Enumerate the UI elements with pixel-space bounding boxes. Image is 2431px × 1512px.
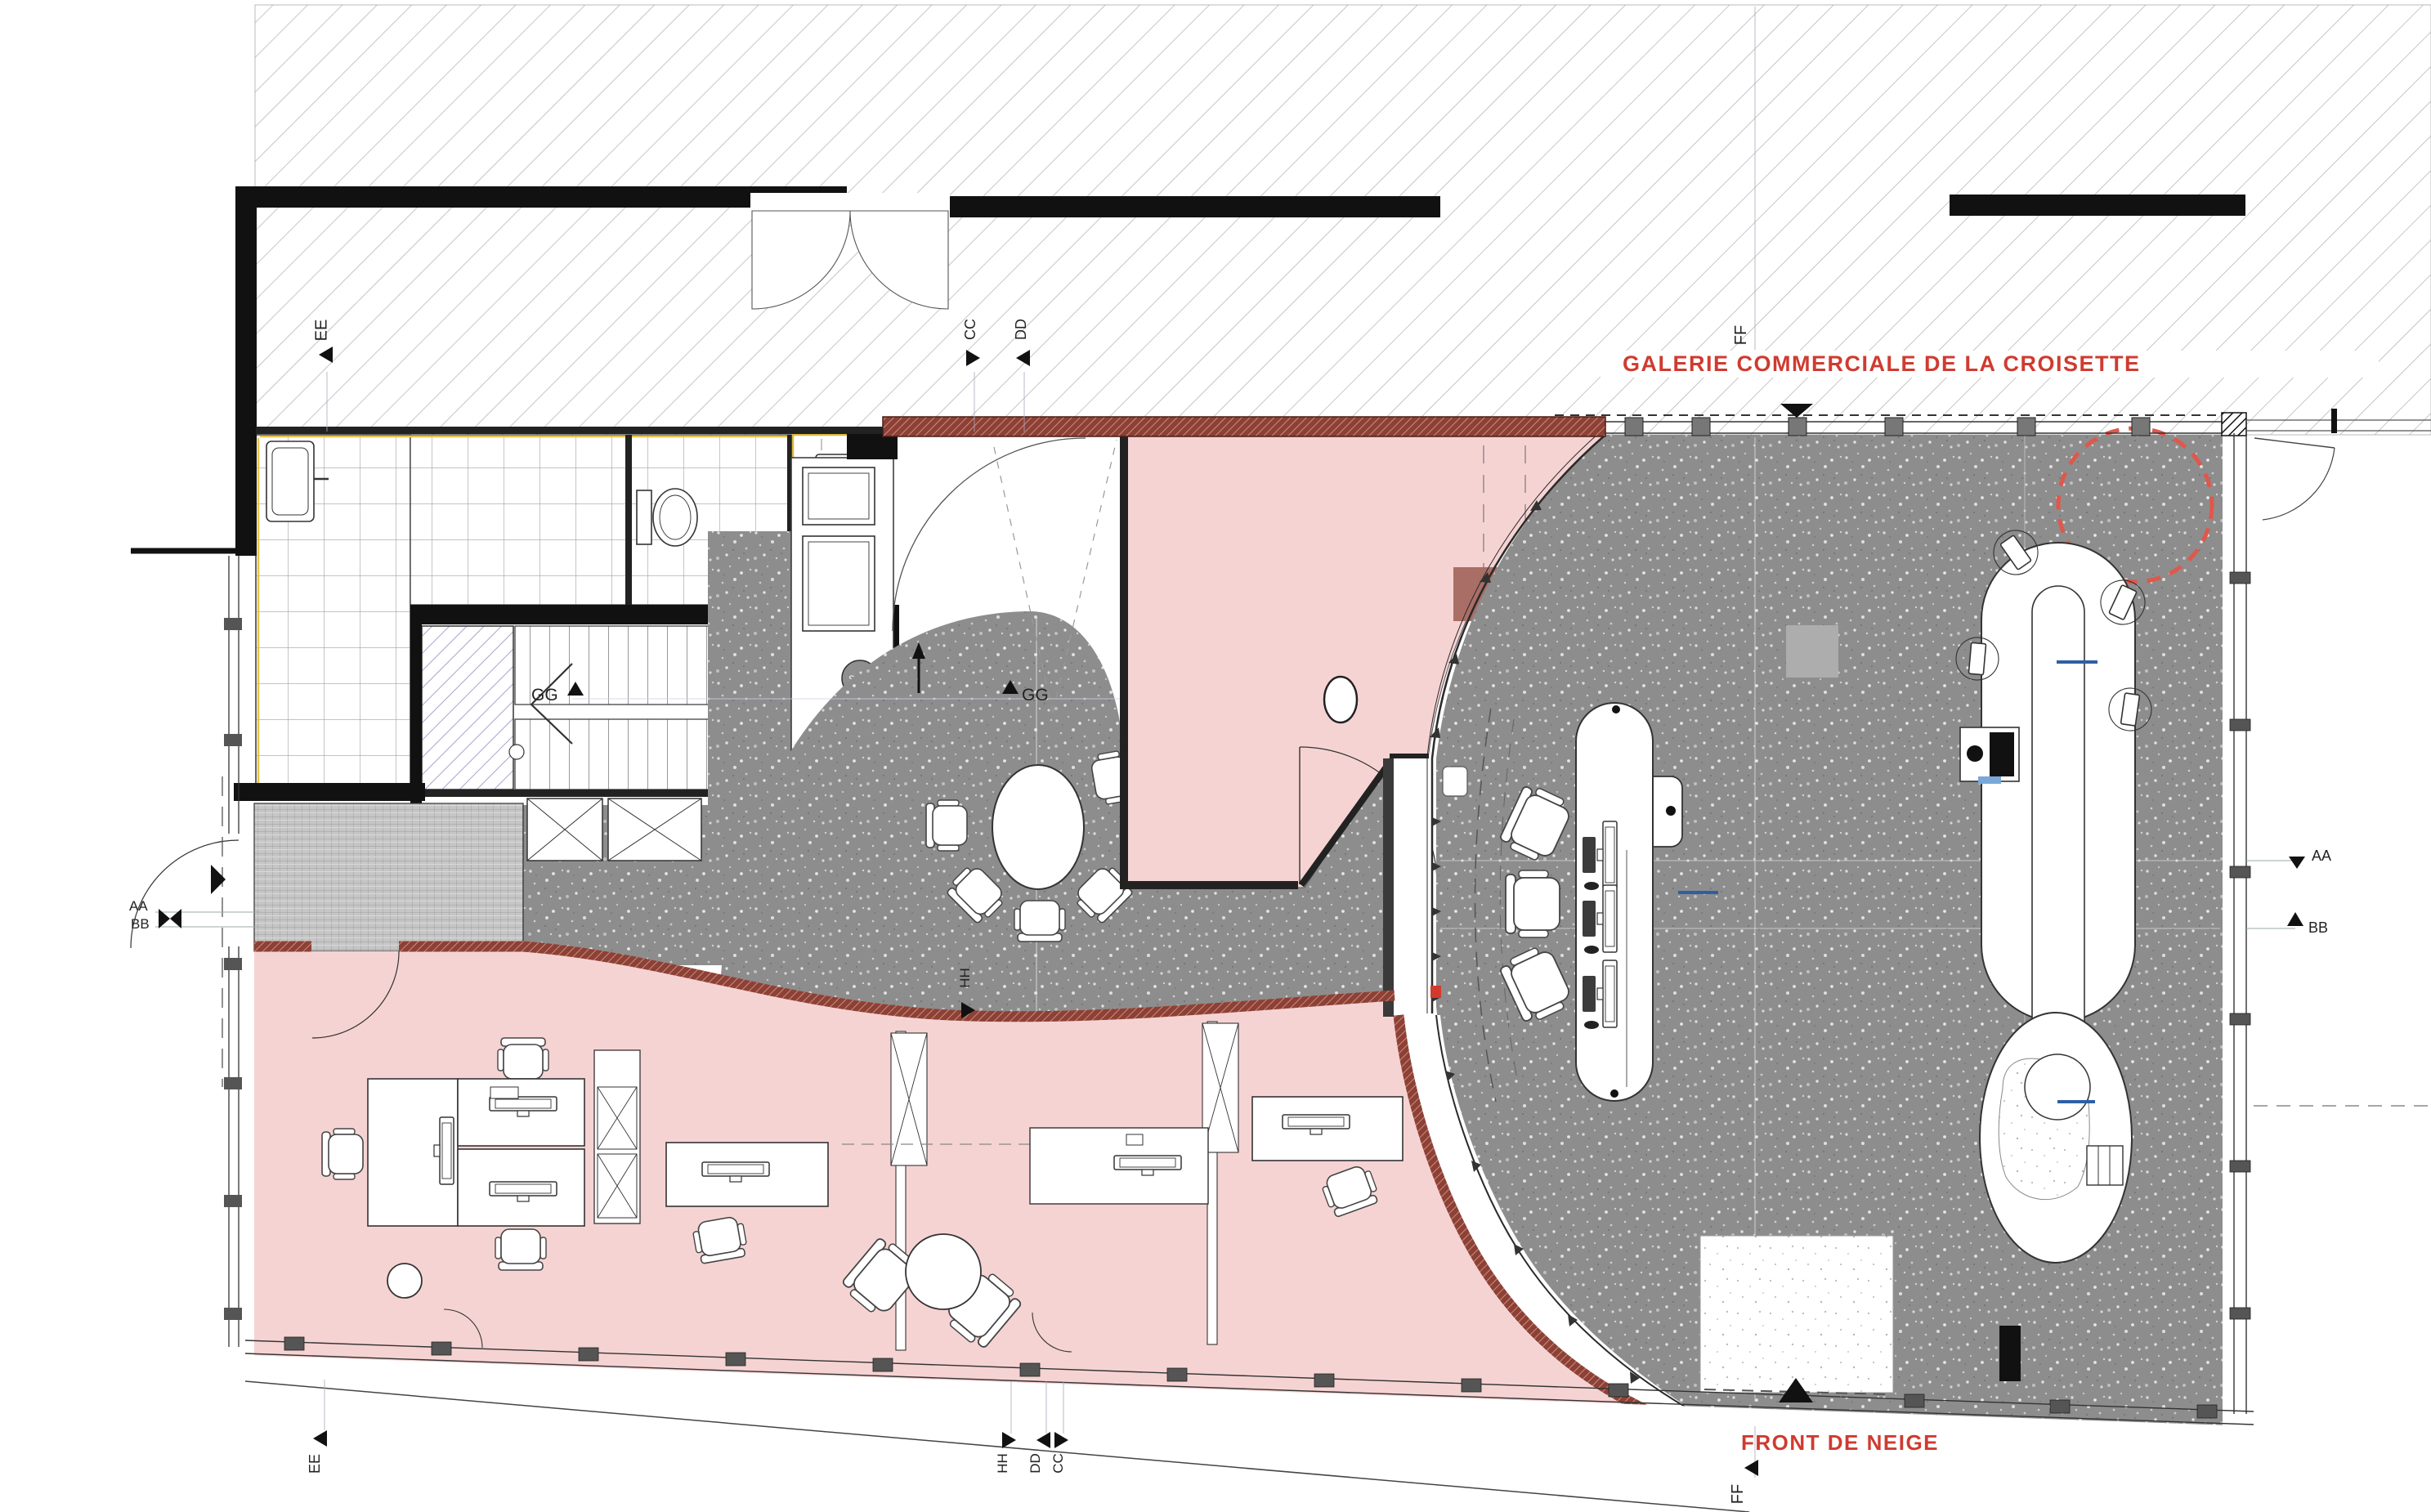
entrance-mat bbox=[1700, 1236, 1893, 1393]
cash-desk-oval bbox=[1980, 1013, 2132, 1263]
section-cc-top: CC bbox=[963, 319, 978, 340]
section-ee-marker-bottom bbox=[313, 1430, 327, 1447]
glazed-facade-right bbox=[2230, 433, 2250, 1414]
front-de-neige-title: FRONT DE NEIGE bbox=[1741, 1432, 1929, 1453]
door-direction-marker bbox=[211, 865, 226, 894]
door-swing bbox=[2263, 448, 2335, 520]
storage-closets bbox=[527, 798, 701, 861]
plan-drawing: Souf. Asp. bbox=[0, 0, 2431, 1512]
office-partition bbox=[594, 1050, 640, 1223]
section-cc-bottom: CC bbox=[1051, 1453, 1065, 1474]
section-bb-marker-right bbox=[2287, 912, 2303, 926]
section-ff-bottom: FF bbox=[1730, 1484, 1746, 1504]
section-cc-marker-top bbox=[966, 350, 980, 366]
section-bb-right: BB bbox=[2308, 920, 2328, 935]
corner-column bbox=[2222, 413, 2246, 436]
floor-opening bbox=[1786, 625, 1838, 678]
section-hh-mid: HH bbox=[958, 968, 972, 988]
section-ff-top: FF bbox=[1733, 325, 1749, 345]
keyboard bbox=[1583, 837, 1596, 1012]
section-hh-marker-bottom bbox=[1002, 1432, 1016, 1448]
section-ee-bottom: EE bbox=[307, 1454, 322, 1474]
section-hh-marker-mid bbox=[961, 1002, 975, 1018]
column bbox=[1324, 677, 1357, 722]
section-gg-marker-left bbox=[567, 682, 584, 696]
floor-plan: Souf. Asp. bbox=[0, 0, 2431, 1512]
side-table bbox=[387, 1264, 422, 1298]
section-aa-left: AA bbox=[129, 899, 148, 913]
section-dd-bottom: DD bbox=[1028, 1453, 1042, 1474]
customer-chair bbox=[1506, 870, 1560, 937]
stool bbox=[2025, 1054, 2090, 1120]
galerie-entrance-arrow bbox=[1780, 404, 1813, 418]
section-dd-marker-top bbox=[1016, 350, 1030, 366]
section-gg-left: GG bbox=[531, 687, 558, 704]
section-dd-marker-bottom bbox=[1036, 1432, 1050, 1448]
column bbox=[1999, 1326, 2021, 1381]
section-aa-right: AA bbox=[2312, 848, 2331, 863]
north-entrance-arrow bbox=[1779, 1378, 1813, 1402]
section-ee-top: EE bbox=[313, 320, 329, 342]
section-ee-marker-top bbox=[319, 347, 333, 363]
toilet bbox=[637, 489, 697, 546]
machine bbox=[1960, 727, 2019, 784]
section-cc-marker-bottom bbox=[1054, 1432, 1068, 1448]
elevator-shaft bbox=[422, 626, 513, 790]
walkway-upper bbox=[1394, 758, 1432, 1015]
section-gg-marker-right bbox=[1002, 680, 1019, 694]
section-bb-left: BB bbox=[131, 917, 150, 931]
red-marker bbox=[1430, 986, 1441, 998]
section-gg-right: GG bbox=[1022, 687, 1049, 704]
section-dd-top: DD bbox=[1014, 319, 1028, 340]
section-hh-bottom: HH bbox=[996, 1453, 1010, 1474]
section-aa-marker-right bbox=[2289, 857, 2305, 869]
glazed-facade-left bbox=[131, 556, 242, 1347]
section-ff-marker bbox=[1744, 1460, 1758, 1476]
galerie-wall bbox=[883, 417, 1605, 436]
meeting-table bbox=[992, 765, 1084, 889]
galerie-title: GALERIE COMMERCIALE DE LA CROISETTE bbox=[1623, 353, 2056, 375]
vestibule-mat bbox=[254, 803, 523, 951]
round-table bbox=[906, 1234, 981, 1309]
drawer bbox=[2087, 1146, 2123, 1185]
